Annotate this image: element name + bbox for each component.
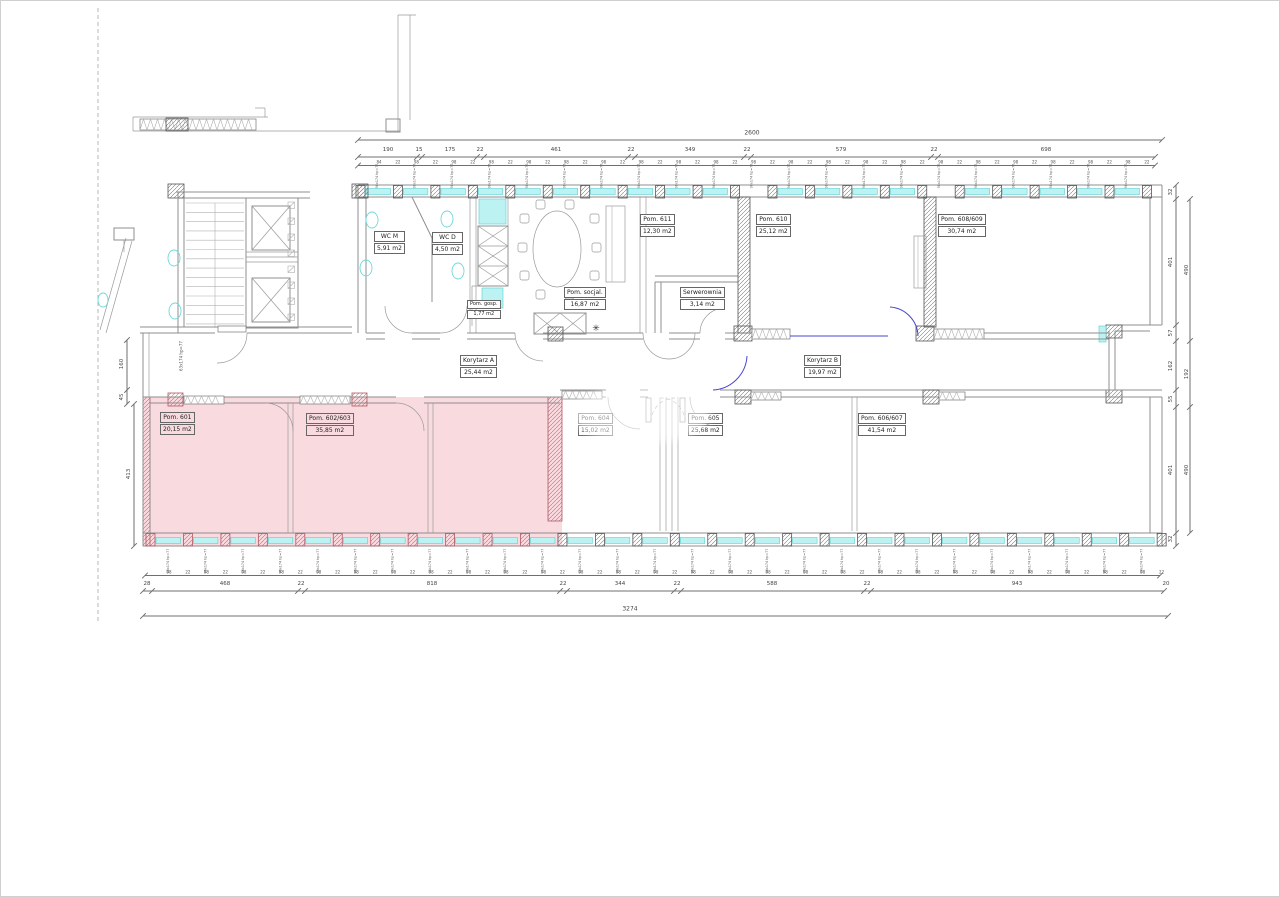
svg-text:98x174 hp=77: 98x174 hp=77 [637,164,641,189]
svg-text:22: 22 [583,160,589,165]
svg-text:22: 22 [1084,570,1090,575]
svg-text:98x174 hp=77: 98x174 hp=77 [1087,164,1091,189]
svg-text:98x174 hp=77: 98x174 hp=77 [450,164,454,189]
svg-text:98x174 hp=77: 98x174 hp=77 [412,164,416,189]
dimension-value: 2600 [744,130,759,137]
svg-text:22: 22 [522,570,528,575]
dimension-value: 943 [1012,581,1023,587]
svg-text:22: 22 [658,160,664,165]
room-area: 4,50 m2 [432,244,463,255]
dimension-value: 413 [126,469,132,480]
svg-text:98x174 hp=77: 98x174 hp=77 [690,549,694,574]
svg-text:22: 22 [395,160,401,165]
svg-text:98x174 hp=77: 98x174 hp=77 [765,549,769,574]
dimension-value: 401 [1168,257,1174,268]
room-label-pom-602-603: Pom. 602/603 35,85 m2 [306,413,354,436]
svg-text:22: 22 [620,160,626,165]
floorplan-canvas: ✳ 842298x174 hp=77982298x174 hp=77982298… [0,0,1280,897]
svg-text:98x174 hp=77: 98x174 hp=77 [241,549,245,574]
svg-text:98x174 hp=77: 98x174 hp=77 [878,549,882,574]
svg-text:22: 22 [882,160,888,165]
svg-text:22: 22 [1047,570,1053,575]
svg-text:22: 22 [260,570,266,575]
svg-text:98x174 hp=77: 98x174 hp=77 [952,549,956,574]
svg-text:22: 22 [732,160,738,165]
svg-text:98x174 hp=77: 98x174 hp=77 [1102,549,1106,574]
dimension-value: 579 [836,147,847,153]
dimension-value: 344 [615,581,626,587]
svg-text:98x174 hp=77: 98x174 hp=77 [353,549,357,574]
svg-text:22: 22 [545,160,551,165]
svg-text:98x174 hp=77: 98x174 hp=77 [1124,164,1128,189]
svg-text:22: 22 [433,160,439,165]
furniture: ✳ [518,200,926,341]
svg-text:98x174 hp=77: 98x174 hp=77 [166,549,170,574]
room-name: WC M [374,231,405,242]
room-area: 19,97 m2 [804,367,841,378]
svg-text:98x174 hp=77: 98x174 hp=77 [1140,549,1144,574]
svg-text:98x174 hp=77: 98x174 hp=77 [675,164,679,189]
svg-text:98x174 hp=77: 98x174 hp=77 [937,164,941,189]
svg-text:22: 22 [508,160,514,165]
svg-text:22: 22 [1159,570,1165,575]
svg-text:22: 22 [635,570,641,575]
room-name: Pom. gosp. [467,300,501,309]
svg-text:✳: ✳ [592,324,600,334]
room-area: 12,30 m2 [640,226,675,237]
room-label-pom-611: Pom. 611 12,30 m2 [640,214,675,237]
svg-text:98x174 hp=77: 98x174 hp=77 [541,549,545,574]
svg-text:98x174 hp=77: 98x174 hp=77 [1027,549,1031,574]
svg-text:22: 22 [1009,570,1015,575]
svg-text:98x174 hp=77: 98x174 hp=77 [615,549,619,574]
svg-text:22: 22 [957,160,963,165]
dimension-value: 22 [560,581,567,587]
svg-text:22: 22 [410,570,416,575]
svg-text:98x174 hp=77: 98x174 hp=77 [1049,164,1053,189]
room-label-pom-608-609: Pom. 608/609 30,74 m2 [938,214,986,237]
dimension-value: 57 [1168,330,1174,337]
room-area: 41,54 m2 [858,425,906,436]
svg-text:22: 22 [845,160,851,165]
svg-text:22: 22 [822,570,828,575]
svg-text:22: 22 [1122,570,1128,575]
dimension-value: 22 [477,147,484,153]
svg-text:22: 22 [1144,160,1150,165]
svg-text:98x174 hp=77: 98x174 hp=77 [428,549,432,574]
svg-text:22: 22 [298,570,304,575]
svg-text:98x174 hp=77: 98x174 hp=77 [1012,164,1016,189]
svg-text:98x174 hp=77: 98x174 hp=77 [203,549,207,574]
dimension-value: 468 [220,581,231,587]
dimension-value: 175 [445,147,456,153]
room-label-pom-606-607: Pom. 606/607 41,54 m2 [858,413,906,436]
svg-text:22: 22 [785,570,791,575]
dimension-value: 818 [427,581,438,587]
room-name: Serwerownia [680,287,725,298]
svg-text:22: 22 [373,570,379,575]
svg-text:22: 22 [995,160,1001,165]
room-name: Pom. 606/607 [858,413,906,424]
dimension-value: 28 [144,581,151,587]
dimension-value: 22 [628,147,635,153]
svg-text:98x174 hp=77: 98x174 hp=77 [862,164,866,189]
room-label-pom-gosp: Pom. gosp. 1,77 m2 [467,300,501,319]
room-name: Korytarz A [460,355,497,366]
svg-text:98x174 hp=77: 98x174 hp=77 [1065,549,1069,574]
dimension-lines [124,137,1193,619]
room-name: Pom. 608/609 [938,214,986,225]
svg-text:22: 22 [448,570,454,575]
svg-text:98x174 hp=77: 98x174 hp=77 [840,549,844,574]
svg-text:22: 22 [710,570,716,575]
room-name: Pom. socjal. [564,287,606,298]
floor-plan-linework: ✳ 842298x174 hp=77982298x174 hp=77982298… [0,0,1280,897]
dimension-value: 22 [931,147,938,153]
dimension-value: 192 [1184,369,1190,380]
dimension-value: 22 [864,581,871,587]
svg-text:98x174 hp=77: 98x174 hp=77 [316,549,320,574]
svg-text:22: 22 [1107,160,1113,165]
room-name: Korytarz B [804,355,841,366]
svg-text:98x174 hp=77: 98x174 hp=77 [915,549,919,574]
dimension-value: 490 [1184,265,1190,276]
dimension-value: 588 [767,581,778,587]
svg-text:22: 22 [1032,160,1038,165]
svg-text:98x174 hp=77: 98x174 hp=77 [391,549,395,574]
dimension-value: 160 [119,359,125,370]
room-area: 3,14 m2 [680,299,725,310]
svg-text:98x174 hp=77: 98x174 hp=77 [525,164,529,189]
svg-text:22: 22 [223,570,229,575]
svg-text:98x174 hp=77: 98x174 hp=77 [990,549,994,574]
svg-text:22: 22 [470,160,476,165]
svg-text:22: 22 [185,570,191,575]
svg-text:98x174 hp=77: 98x174 hp=77 [787,164,791,189]
svg-text:98x174 hp=77: 98x174 hp=77 [974,164,978,189]
svg-text:98x174 hp=77: 98x174 hp=77 [653,549,657,574]
dimension-value: 349 [685,147,696,153]
room-name: Pom. 601 [160,412,195,423]
svg-text:22: 22 [560,570,566,575]
dimension-value: 461 [551,147,562,153]
svg-text:22: 22 [859,570,865,575]
dimension-value: 190 [383,147,394,153]
svg-text:98x174 hp=77: 98x174 hp=77 [600,164,604,189]
svg-text:22: 22 [747,570,753,575]
svg-text:22: 22 [972,570,978,575]
room-label-pom-610: Pom. 610 25,12 m2 [756,214,791,237]
room-name: Pom. 611 [640,214,675,225]
dimension-value: 22 [744,147,751,153]
svg-text:98x174 hp=77: 98x174 hp=77 [466,549,470,574]
room-area: 30,74 m2 [938,226,986,237]
svg-text:22: 22 [485,570,491,575]
room-area: 20,15 m2 [160,424,195,435]
svg-text:98x174 hp=77: 98x174 hp=77 [750,164,754,189]
room-area: 25,44 m2 [460,367,497,378]
dimension-value: 401 [1168,465,1174,476]
photo-watermark [572,386,710,444]
room-label-pom-601: Pom. 601 20,15 m2 [160,412,195,435]
room-name: Pom. 610 [756,214,791,225]
room-label-wc-d: WC D 4,50 m2 [432,232,463,255]
room-name: WC D [432,232,463,243]
room-label-wc-m: WC M 5,91 m2 [374,231,405,254]
svg-text:22: 22 [1069,160,1075,165]
dimension-value: 32 [1168,536,1174,543]
room-area: 16,87 m2 [564,299,606,310]
svg-text:98x174 hp=77: 98x174 hp=77 [503,549,507,574]
dimension-value: 32 [1168,189,1174,196]
svg-text:98x174 hp=77: 98x174 hp=77 [803,549,807,574]
svg-text:98x174 hp=77: 98x174 hp=77 [487,164,491,189]
svg-text:98x174 hp=77: 98x174 hp=77 [712,164,716,189]
room-label-serwerownia: Serwerownia 3,14 m2 [680,287,725,310]
svg-text:98x174 hp=77: 98x174 hp=77 [278,549,282,574]
dimension-value: 22 [298,581,305,587]
stairs-and-elevators [98,184,464,363]
svg-text:22: 22 [335,570,341,575]
room-area: 1,77 m2 [467,310,501,319]
room-label-korytarz-b: Korytarz B 19,97 m2 [804,355,841,378]
dimension-value: 698 [1041,147,1052,153]
room-area: 25,12 m2 [756,226,791,237]
room-area: 5,91 m2 [374,243,405,254]
room-name: Pom. 602/603 [306,413,354,424]
dimension-value: 15 [416,147,423,153]
svg-text:22: 22 [897,570,903,575]
svg-text:22: 22 [672,570,678,575]
dimension-value: 45 [119,394,125,401]
svg-text:22: 22 [920,160,926,165]
svg-text:22: 22 [597,570,603,575]
svg-text:22: 22 [770,160,776,165]
dimension-value: 55 [1168,396,1174,403]
dimension-value: 162 [1168,361,1174,372]
svg-text:98x174 hp=77: 98x174 hp=77 [824,164,828,189]
dimension-value: 22 [674,581,681,587]
window-size-label: 63x174 hp=77 [179,341,184,371]
svg-text:22: 22 [807,160,813,165]
dimension-value: 490 [1184,465,1190,476]
dimension-value: 20 [1163,581,1170,587]
svg-text:98x174 hp=77: 98x174 hp=77 [375,164,379,189]
svg-text:98x174 hp=77: 98x174 hp=77 [578,549,582,574]
svg-text:98x174 hp=77: 98x174 hp=77 [728,549,732,574]
room-label-korytarz-a: Korytarz A 25,44 m2 [460,355,497,378]
svg-text:98x174 hp=77: 98x174 hp=77 [562,164,566,189]
svg-text:22: 22 [695,160,701,165]
room-area: 35,85 m2 [306,425,354,436]
svg-text:98x174 hp=77: 98x174 hp=77 [899,164,903,189]
dimension-value: 3274 [622,606,637,613]
room-label-pom-socjal: Pom. socjal. 16,87 m2 [564,287,606,310]
svg-text:22: 22 [934,570,940,575]
